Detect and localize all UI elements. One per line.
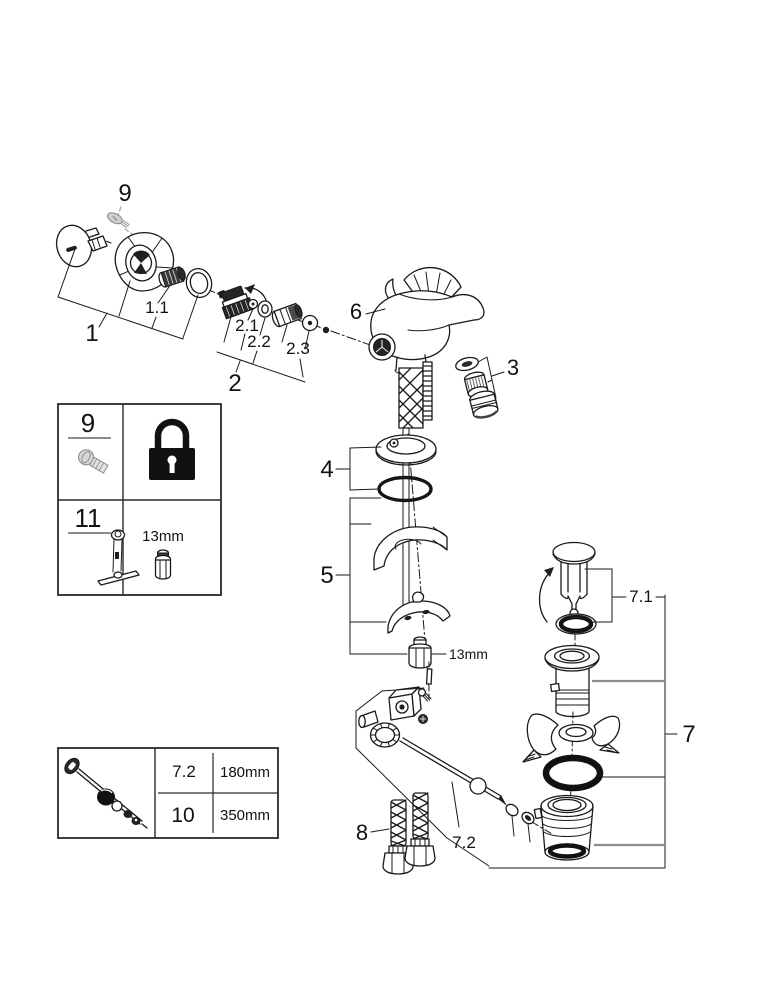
parts-diagram-page: 9 1 1.1 2 2.1 2.2 2.3 3 6 4 5 13mm 7.1 7… <box>0 0 769 1000</box>
linkage-housing <box>389 687 433 724</box>
callout-5: 5 <box>320 562 333 589</box>
callout-2: 2 <box>228 370 241 397</box>
callout-9-top: 9 <box>118 180 131 207</box>
callout-8: 8 <box>356 820 368 845</box>
drain-gasket <box>546 758 600 788</box>
plunger-o-ring <box>556 614 596 634</box>
aerator-washer <box>454 355 479 372</box>
callout-7-2: 7.2 <box>452 833 476 852</box>
knurled-ring <box>371 723 400 747</box>
cartridge-seal-2-2 <box>258 301 272 317</box>
drain-body <box>534 796 593 861</box>
supply-hoses <box>383 793 435 874</box>
cartridge-ball-2-1 <box>249 300 258 309</box>
callout-4: 4 <box>320 456 333 483</box>
exploded-parts-diagram: 9 1 1.1 2 2.1 2.2 2.3 3 6 4 5 13mm 7.1 7… <box>0 0 769 1000</box>
drain-plunger <box>540 543 595 623</box>
rosette <box>376 435 436 465</box>
handle-ring <box>183 266 215 300</box>
rod-table-len-2: 350mm <box>220 807 270 824</box>
nut-size-label: 13mm <box>449 646 488 662</box>
callout-1: 1 <box>85 320 98 347</box>
legend-nut-size: 13mm <box>142 528 184 545</box>
legend-nut-icon <box>156 550 171 579</box>
mounting-plate <box>388 592 450 633</box>
cartridge-spindle-2-3 <box>270 302 304 327</box>
rod-table-ref-2: 10 <box>171 804 194 827</box>
handle-cap <box>51 221 107 271</box>
legend-tool-number: 11 <box>75 503 102 533</box>
callout-1-1: 1.1 <box>145 298 169 317</box>
callout-7: 7 <box>682 721 695 748</box>
rod-table-box: 7.2 180mm 10 350mm <box>58 748 278 838</box>
washer-small <box>303 316 330 334</box>
mounting-wedge <box>374 527 447 570</box>
rod-table-ref-1: 7.2 <box>172 762 196 781</box>
mounting-nut <box>409 637 431 668</box>
callout-6: 6 <box>350 299 362 324</box>
callout-3: 3 <box>507 355 519 380</box>
callout-2-3: 2.3 <box>286 339 310 358</box>
rod-table-len-1: 180mm <box>220 764 270 781</box>
legend-box: 9 11 13mm <box>58 404 221 595</box>
cone-plug <box>359 711 378 728</box>
callout-2-2: 2.2 <box>247 332 271 351</box>
drain-flange <box>545 646 599 717</box>
legend-screw-number: 9 <box>81 408 95 438</box>
o-ring <box>379 478 431 501</box>
callout-7-1: 7.1 <box>629 587 653 606</box>
